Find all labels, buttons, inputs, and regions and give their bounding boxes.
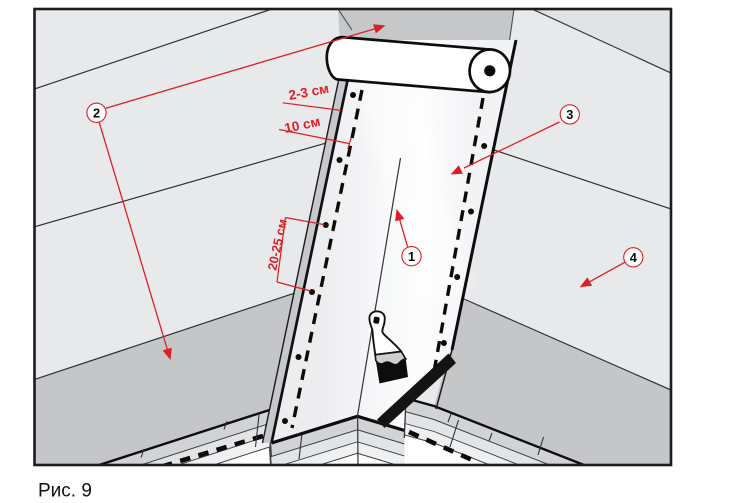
svg-text:2: 2	[93, 105, 100, 120]
svg-text:Рис. 9: Рис. 9	[38, 481, 92, 502]
svg-text:4: 4	[630, 250, 638, 265]
svg-text:3: 3	[566, 107, 573, 122]
svg-text:1: 1	[408, 249, 415, 264]
